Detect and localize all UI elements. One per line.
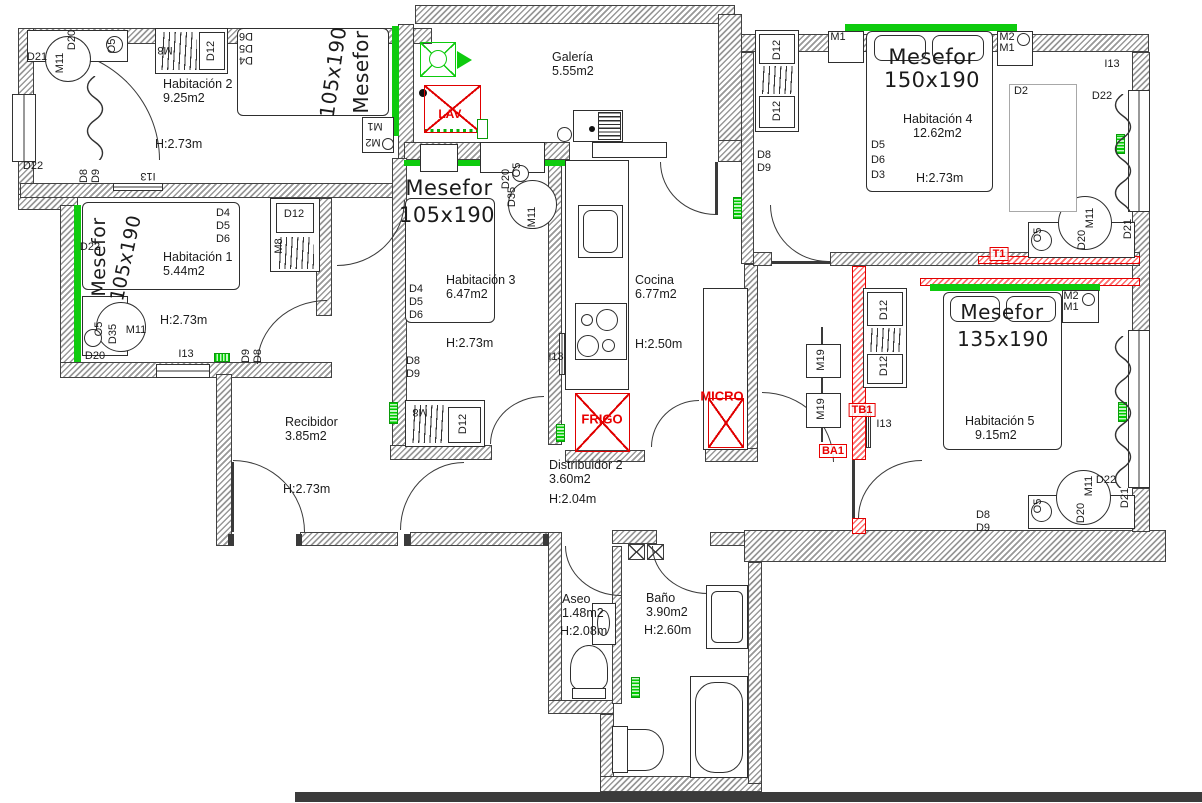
room-label-hab2: Habitación 29.25m2 [163, 77, 233, 105]
door-leaf [852, 460, 855, 518]
code-label-d6: D6 [409, 309, 423, 321]
code-label-m19: M19 [815, 349, 827, 370]
code-label-d3: D3 [871, 169, 885, 181]
code-label-d8: D8 [252, 349, 264, 363]
code-label-d8: D8 [406, 355, 420, 367]
code-label-d35: D35 [506, 187, 518, 207]
radiator-valve-icon [631, 677, 640, 698]
code-label-d22: D22 [1096, 474, 1116, 486]
door-arc [651, 400, 699, 447]
curtain-icon [1112, 94, 1134, 212]
kitchen-sink-basin [583, 210, 618, 253]
room-area: 5.55m2 [552, 64, 594, 78]
vent-shaft-symbol [628, 544, 645, 560]
code-label-d12: D12 [284, 208, 304, 220]
code-label-o5: O5 [1032, 499, 1044, 514]
code-label-o5: O5 [106, 39, 118, 54]
code-label-d12: D12 [205, 41, 217, 61]
code-label-i13: I13 [140, 170, 155, 182]
code-label-d8: D8 [976, 509, 990, 521]
code-label-o5: O5 [511, 163, 523, 178]
door-arc [490, 396, 544, 444]
code-label-t1: T1 [990, 247, 1009, 261]
code-label-d9: D9 [240, 349, 252, 363]
radiator [74, 205, 81, 362]
radiator-valve-icon [733, 197, 742, 219]
door-arc [257, 300, 327, 364]
code-label-d12: D12 [771, 101, 783, 121]
wall-segment [548, 532, 562, 706]
code-label-ba1: BA1 [819, 444, 847, 458]
door-jamb [543, 534, 549, 546]
washbasin [711, 591, 743, 643]
curtain-icon [84, 76, 106, 160]
room-label-hab4: Habitación 412.62m2 [903, 112, 973, 140]
room-height-hab4: H:2.73m [916, 171, 963, 185]
room-area: 9.25m2 [163, 91, 233, 105]
room-label-bano: Baño3.90m2 [646, 591, 688, 619]
wall-segment [20, 183, 400, 198]
code-label-d12: D12 [457, 414, 469, 434]
code-label-d21: D21 [27, 51, 47, 63]
code-label-m1: M1 [830, 31, 845, 43]
wall-segment [741, 52, 754, 264]
code-label-m2: M2 [365, 136, 380, 148]
bed-label-hab5: Mesefor [960, 300, 1043, 324]
code-label-d20: D20 [1076, 230, 1088, 250]
wall-segment [718, 14, 742, 142]
room-name: Distribuidor 2 [549, 458, 623, 472]
code-label-d6: D6 [239, 30, 253, 42]
wall-segment [612, 530, 657, 544]
door-arc [770, 205, 828, 262]
wall-segment [1132, 52, 1150, 92]
microwave-symbol [708, 398, 744, 448]
wall-segment [216, 374, 232, 546]
room-name: Aseo [562, 592, 604, 606]
code-label-d2: D2 [1014, 85, 1028, 97]
code-label-m11: M11 [1083, 476, 1095, 497]
toilet-base [572, 688, 606, 699]
room-area: 1.48m2 [562, 606, 604, 620]
code-label-d22: D22 [1092, 90, 1112, 102]
basin-circle [382, 138, 394, 150]
code-label-d20: D20 [1075, 503, 1087, 523]
code-label-frigo: FRIGO [581, 412, 622, 427]
room-area: 12.62m2 [913, 126, 973, 140]
wardrobe-hanging-rail [867, 328, 903, 352]
code-label-d5: D5 [216, 220, 230, 232]
room-label-hab3: Habitación 36.47m2 [446, 273, 516, 301]
code-label-m8: M8 [273, 238, 285, 253]
room-name: Galería [552, 50, 594, 64]
room-label-hab5: Habitación 59.15m2 [965, 414, 1035, 442]
radiator-valve-icon [556, 424, 565, 442]
toilet-bowl [627, 729, 664, 771]
door-arc [400, 462, 464, 530]
wall-segment [300, 532, 398, 546]
bed-label-hab4: Mesefor [888, 45, 975, 69]
wall-segment [548, 700, 614, 714]
wall-segment [398, 24, 414, 160]
room-area: 6.77m2 [635, 287, 677, 301]
room-label-aseo: Aseo1.48m2 [562, 592, 604, 620]
wall-segment [705, 448, 758, 462]
code-label-micro: MICRO [700, 389, 743, 404]
code-label-o5: O5 [1032, 228, 1044, 243]
wall-segment [390, 445, 492, 460]
bed-size-hab4: 150x190 [884, 68, 980, 92]
code-label-d12: D12 [878, 300, 890, 320]
room-area: 6.47m2 [446, 287, 516, 301]
window [12, 94, 36, 162]
code-label-d6: D6 [871, 154, 885, 166]
wardrobe-hanging-rail [759, 66, 795, 94]
furniture [592, 142, 667, 158]
room-name: Cocina [635, 273, 677, 287]
room-height-hab3: H:2.73m [446, 336, 493, 350]
wall-segment [415, 5, 735, 24]
code-label-i13: I13 [548, 351, 563, 363]
room-name: Habitación 4 [903, 112, 973, 126]
code-label-d5: D5 [239, 42, 253, 54]
code-label-m19: M19 [815, 398, 827, 419]
code-label-d35: D35 [107, 324, 119, 344]
room-label-distribuidor2: Distribuidor 23.60m2 [549, 458, 623, 486]
desk-d2 [1009, 84, 1077, 212]
code-label-m8: M8 [157, 44, 172, 56]
room-name: Habitación 5 [965, 414, 1035, 428]
code-label-lav: LAV. [438, 107, 463, 121]
code-label-d4: D4 [409, 283, 423, 295]
code-label-d20: D20 [85, 350, 105, 362]
furniture [420, 144, 458, 172]
code-label-m11: M11 [126, 324, 147, 336]
code-label-d8: D8 [757, 149, 771, 161]
wall-segment [748, 562, 762, 784]
code-label-i13: I13 [1104, 58, 1119, 70]
code-label-d22: D22 [23, 160, 43, 172]
room-height-cocina: H:2.50m [635, 337, 682, 351]
door-jamb [296, 534, 302, 546]
room-height-recibidor: H:2.73m [283, 482, 330, 496]
code-label-m11: M11 [1084, 208, 1096, 229]
room-height-bano: H:2.60m [644, 623, 691, 637]
code-label-d6: D6 [216, 233, 230, 245]
code-label-m1: M1 [999, 42, 1014, 54]
bed-size-hab5: 135x190 [957, 327, 1049, 351]
room-area: 5.44m2 [163, 264, 233, 278]
room-height-hab2: H:2.73m [155, 137, 202, 151]
wall-segment [753, 252, 772, 266]
room-area: 3.85m2 [285, 429, 338, 443]
room-label-cocina: Cocina6.77m2 [635, 273, 677, 301]
water-heater-grille [598, 112, 621, 140]
code-label-d21: D21 [1119, 488, 1131, 508]
code-label-m1: M1 [367, 120, 382, 132]
code-label-d9: D9 [976, 522, 990, 534]
bed-label-hab3: Mesefor [405, 176, 492, 200]
door-arc [858, 460, 922, 518]
extractor-fan-icon [429, 50, 447, 68]
curtain-icon [1112, 336, 1134, 488]
room-height-hab1: H:2.73m [160, 313, 207, 327]
code-label-d9: D9 [406, 368, 420, 380]
room-name: Habitación 2 [163, 77, 233, 91]
bed-label-hab2: Mesefor [349, 30, 373, 113]
radiator [845, 24, 1017, 31]
floor-plan: Habitación 29.25m2H:2.73mGalería5.55m2Ha… [0, 0, 1202, 803]
wall-segment [410, 532, 550, 546]
radiator-valve-icon [214, 353, 230, 362]
room-name: Recibidor [285, 415, 338, 429]
bed-label-hab1: Mesefor [88, 217, 110, 296]
room-name: Habitación 3 [446, 273, 516, 287]
code-label-d4: D4 [239, 54, 253, 66]
door-jamb [404, 534, 410, 546]
room-area: 9.15m2 [975, 428, 1035, 442]
code-label-d12: D12 [878, 356, 890, 376]
code-label-d21: D21 [1122, 219, 1134, 239]
code-label-d5: D5 [409, 296, 423, 308]
code-label-i13: I13 [178, 348, 193, 360]
room-area: 3.90m2 [646, 605, 688, 619]
basin-circle [596, 309, 618, 331]
window [113, 183, 163, 191]
door-arc [660, 162, 716, 215]
room-name: Baño [646, 591, 688, 605]
code-label-o5: O5 [93, 322, 105, 337]
room-height-aseo: H:2.08m [560, 624, 607, 638]
code-label-d20: D20 [66, 30, 78, 50]
basin-circle [1017, 33, 1030, 46]
code-label-d8: D8 [78, 169, 90, 183]
faucet-symbol [477, 119, 488, 139]
wall-segment [600, 776, 762, 792]
room-name: Habitación 1 [163, 250, 233, 264]
basin-circle [577, 335, 599, 357]
door-arc [233, 460, 305, 532]
room-label-galeria: Galería5.55m2 [552, 50, 594, 78]
code-label-d9: D9 [90, 169, 102, 183]
vent-arrow-icon [457, 51, 472, 69]
code-label-d5: D5 [871, 139, 885, 151]
connection-dot [589, 126, 595, 132]
code-label-m11: M11 [54, 53, 66, 74]
basin-circle [602, 339, 615, 352]
code-label-d4: D4 [216, 207, 230, 219]
door-arc [565, 546, 621, 596]
sheet-border [295, 792, 1202, 802]
code-label-tb1: TB1 [849, 403, 876, 417]
bed-size-hab3: 105x190 [399, 203, 495, 227]
code-label-m1: M1 [1063, 301, 1078, 313]
window [156, 364, 210, 378]
room-label-hab1: Habitación 15.44m2 [163, 250, 233, 278]
furniture [612, 726, 628, 773]
room-height-distribuidor2: H:2.04m [549, 492, 596, 506]
reform-wall-segment [852, 518, 866, 534]
room-area: 3.60m2 [549, 472, 623, 486]
code-label-d9: D9 [757, 162, 771, 174]
code-label-i13: I13 [876, 418, 891, 430]
code-label-m8: M8 [412, 406, 427, 418]
code-label-m11: M11 [526, 207, 538, 228]
basin-circle [581, 314, 593, 326]
vent-shaft-symbol [647, 544, 664, 560]
basin-circle [1082, 293, 1095, 306]
bathtub-basin [695, 682, 743, 773]
toilet-bowl [570, 645, 608, 691]
basin-circle [557, 127, 572, 142]
room-label-recibidor: Recibidor3.85m2 [285, 415, 338, 443]
code-label-d12: D12 [771, 40, 783, 60]
door-jamb [228, 534, 234, 546]
radiator-valve-icon [389, 402, 398, 424]
wall-segment [744, 530, 1166, 562]
